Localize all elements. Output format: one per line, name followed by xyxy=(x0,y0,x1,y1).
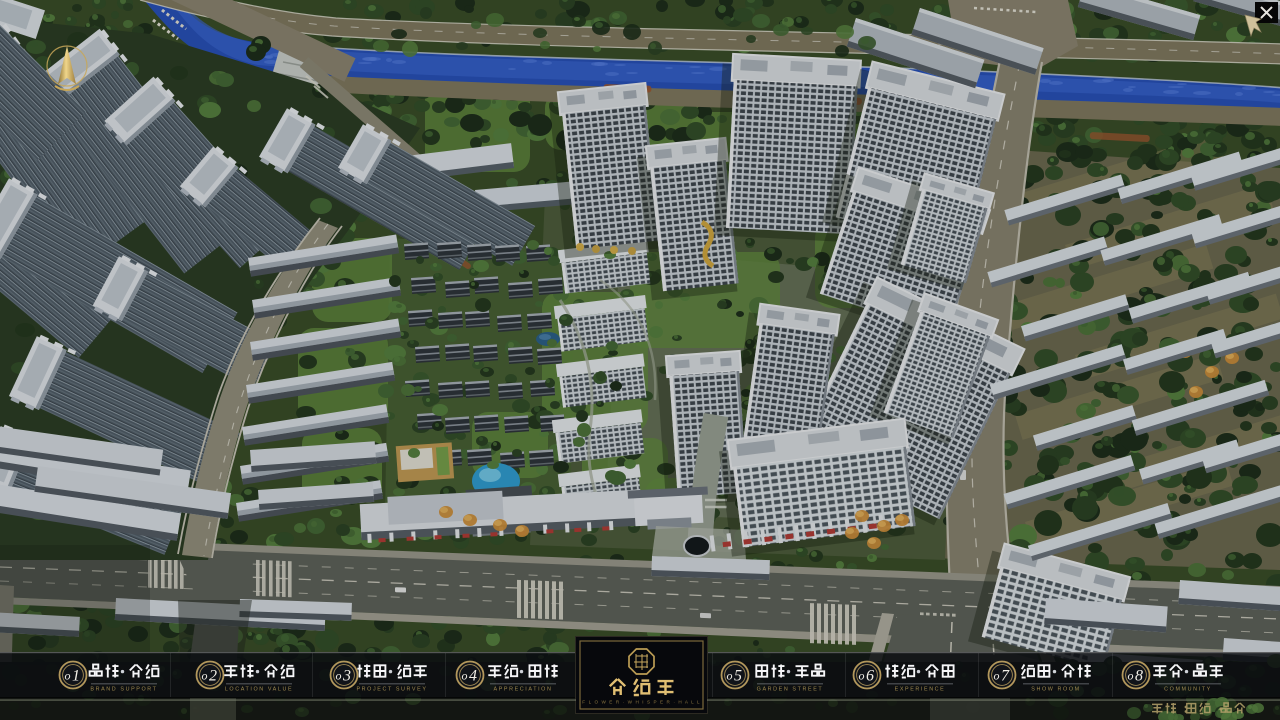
svg-text:o: o xyxy=(1128,669,1134,683)
svg-text:BRAND SUPPORT: BRAND SUPPORT xyxy=(90,687,157,693)
svg-text:1: 1 xyxy=(72,668,80,685)
svg-text:SHOW ROOM: SHOW ROOM xyxy=(1031,687,1080,693)
svg-text:GARDEN STREET: GARDEN STREET xyxy=(757,687,824,693)
svg-text:COMMUNITY: COMMUNITY xyxy=(1164,687,1212,693)
svg-text:APPRECIATION: APPRECIATION xyxy=(494,687,553,693)
svg-text:o: o xyxy=(462,669,468,683)
svg-text:o: o xyxy=(859,669,865,683)
svg-text:o: o xyxy=(994,669,1000,683)
svg-text:4: 4 xyxy=(469,668,477,685)
svg-text:o: o xyxy=(336,669,342,683)
svg-text:5: 5 xyxy=(734,668,742,685)
svg-text:o: o xyxy=(727,669,733,683)
svg-text:EXPERIENCE: EXPERIENCE xyxy=(895,687,946,693)
svg-text:PROJECT SURVEY: PROJECT SURVEY xyxy=(356,687,427,693)
svg-text:8: 8 xyxy=(1135,668,1143,685)
svg-text:F L O W E R · W H I S P E R ·: F L O W E R · W H I S P E R · H A L L xyxy=(582,700,700,705)
svg-text:o: o xyxy=(202,669,208,683)
svg-text:LOCATION VALUE: LOCATION VALUE xyxy=(225,687,293,693)
svg-text:o: o xyxy=(65,669,71,683)
svg-text:7: 7 xyxy=(1001,668,1010,685)
svg-text:6: 6 xyxy=(866,668,874,685)
svg-text:2: 2 xyxy=(209,668,217,685)
svg-text:3: 3 xyxy=(342,668,351,685)
